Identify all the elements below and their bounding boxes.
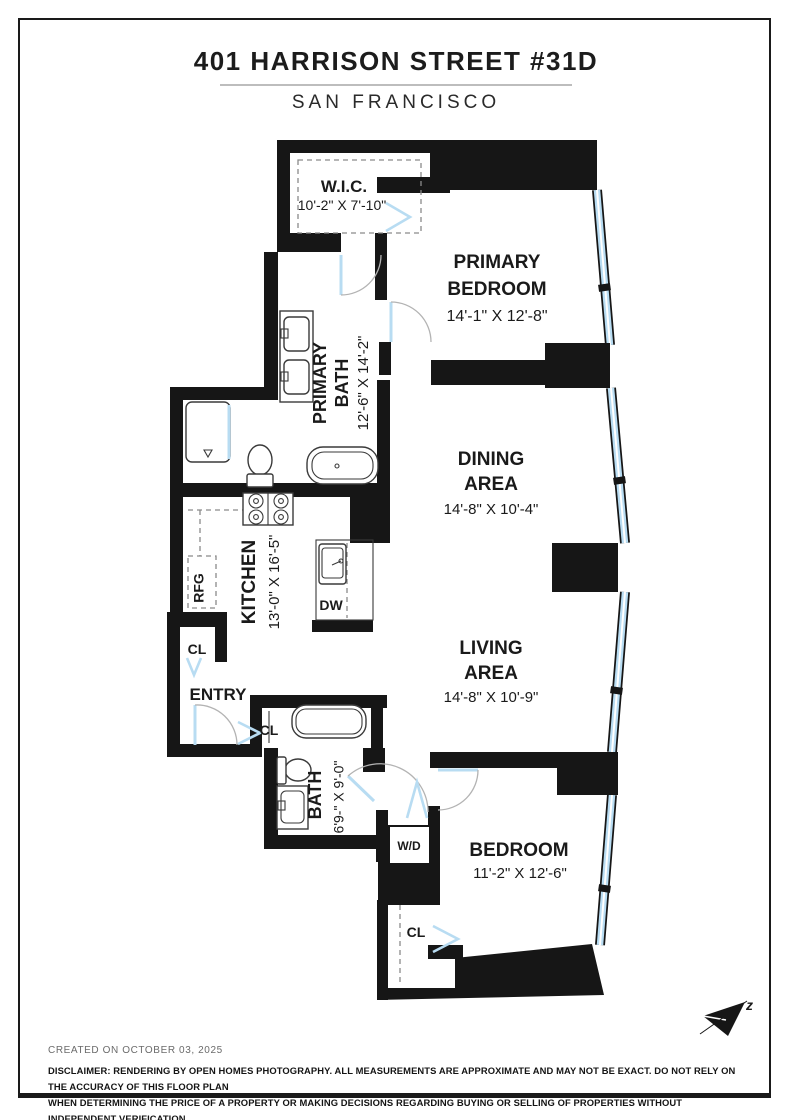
primary-bedroom-door-arc [391, 302, 431, 342]
dining-area-label-1: DINING [458, 449, 525, 470]
north-arrow-label: z [745, 997, 753, 1013]
shower-fixture [186, 402, 230, 462]
primary-bedroom-label-1: PRIMARY [454, 252, 541, 273]
north-arrow-icon: z [700, 997, 753, 1036]
wic-bifold-door [386, 203, 410, 231]
disclaimer-line-1: DISCLAIMER: RENDERING BY OPEN HOMES PHOT… [48, 1063, 748, 1095]
bedroom-label: BEDROOM [469, 840, 568, 861]
wic-label: W.I.C. [321, 177, 367, 196]
bathtub-fixture-primary [307, 447, 378, 484]
stove-fixture [243, 493, 293, 525]
bath-dims: 6'9-" X 9'-0" [331, 761, 347, 834]
hall-bath-door-leaf [348, 776, 374, 801]
living-area-dims: 14'-8" X 10'-9" [444, 689, 539, 706]
kitchen-label: KITCHEN [239, 540, 260, 624]
dining-area-dims: 14'-8" X 10'-4" [444, 501, 539, 518]
entry-label: ENTRY [190, 685, 248, 704]
primary-bath-label-1: PRIMARY [310, 342, 330, 424]
washer-dryer-label: W/D [397, 839, 421, 853]
washer-dryer-bifold-door [407, 782, 427, 818]
closet-label-entry-upper: CL [188, 641, 207, 657]
kitchen-dims: 13'-0" X 16'-5" [266, 535, 283, 630]
dining-area-label-2: AREA [464, 474, 518, 495]
sink-fixture-hall [277, 786, 308, 829]
bedroom-door-arc [438, 770, 478, 810]
disclaimer-line-2: WHEN DETERMINING THE PRICE OF A PROPERTY… [48, 1095, 748, 1120]
floor-plan-drawing: W.I.C. 10'-2" X 7'-10" PRIMARY BEDROOM 1… [0, 0, 792, 1120]
living-area-label-1: LIVING [459, 638, 522, 659]
primary-bath-label-2: BATH [332, 359, 352, 408]
bedroom-dims: 11'-2" X 12'-6" [473, 865, 567, 882]
bathtub-fixture-hall [292, 705, 366, 738]
double-vanity-fixture [280, 311, 313, 402]
created-date: CREATED ON OCTOBER 03, 2025 [48, 1045, 748, 1056]
bath-label: BATH [305, 771, 325, 820]
footer: CREATED ON OCTOBER 03, 2025 DISCLAIMER: … [48, 1045, 748, 1120]
dishwasher-label: DW [319, 597, 343, 613]
refrigerator-label: RFG [191, 573, 207, 603]
floor-plan-page: 401 HARRISON STREET #31D SAN FRANCISCO [0, 0, 792, 1120]
primary-bedroom-label-2: BEDROOM [447, 279, 546, 300]
primary-bath-dims: 12'-6" X 14'-2" [355, 336, 372, 431]
wic-dims: 10'-2" X 7'-10" [298, 197, 386, 213]
entry-closet-bifold-door [187, 658, 201, 675]
closet-label-bedroom: CL [407, 924, 426, 940]
toilet-fixture-primary [247, 445, 273, 487]
entry-door-arc [195, 705, 237, 745]
closet-label-entry-lower: CL [260, 722, 279, 738]
kitchen-counter-dashed [188, 510, 243, 556]
primary-bedroom-dims: 14'-1" X 12'-8" [446, 308, 547, 325]
living-area-label-2: AREA [464, 663, 518, 684]
